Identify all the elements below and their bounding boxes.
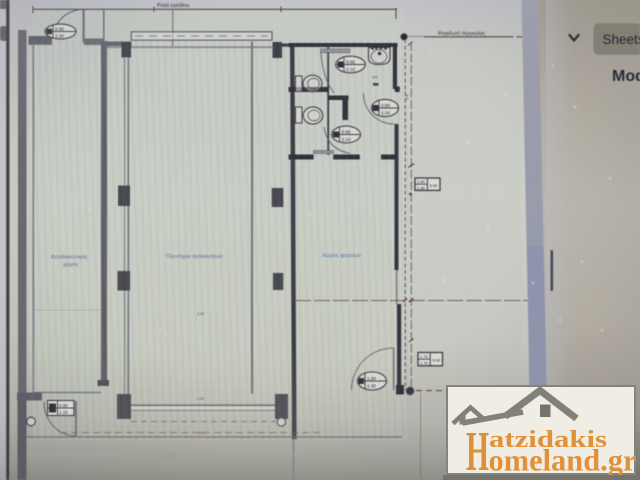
svg-text:omeland.gr: omeland.gr bbox=[489, 444, 637, 478]
svg-text:H: H bbox=[466, 421, 489, 480]
